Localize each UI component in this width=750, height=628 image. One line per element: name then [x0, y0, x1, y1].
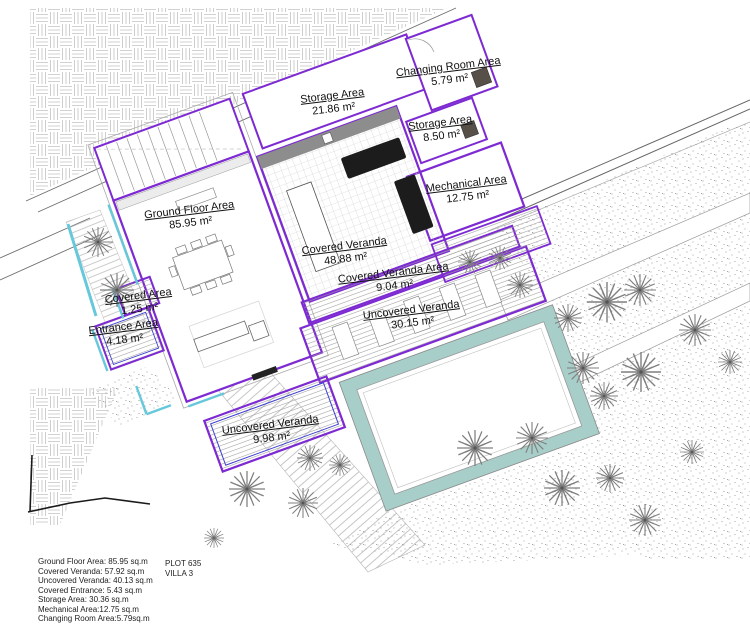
schedule-line: Ground Floor Area: 85.95 sq.m: [38, 557, 153, 567]
schedule-line: Storage Area: 30.36 sq.m: [38, 595, 153, 605]
schedule-line: Changing Room Area:5.79sq.m: [38, 614, 153, 624]
schedule-line: Covered Veranda: 57.92 sq.m: [38, 567, 153, 577]
schedule-line: Mechanical Area:12.75 sq.m: [38, 605, 153, 615]
schedule-line: Covered Entrance: 5.43 sq.m: [38, 586, 153, 596]
title-block: PLOT 635 VILLA 3: [165, 559, 201, 578]
schedule-line: Uncovered Veranda: 40.13 sq.m: [38, 576, 153, 586]
site-plan-sheet: Changing Room Area 5.79 m² Storage Area …: [0, 0, 750, 628]
area-schedule: Ground Floor Area: 85.95 sq.m Covered Ve…: [38, 557, 153, 624]
plot-number: PLOT 635: [165, 559, 201, 569]
villa-number: VILLA 3: [165, 569, 201, 579]
